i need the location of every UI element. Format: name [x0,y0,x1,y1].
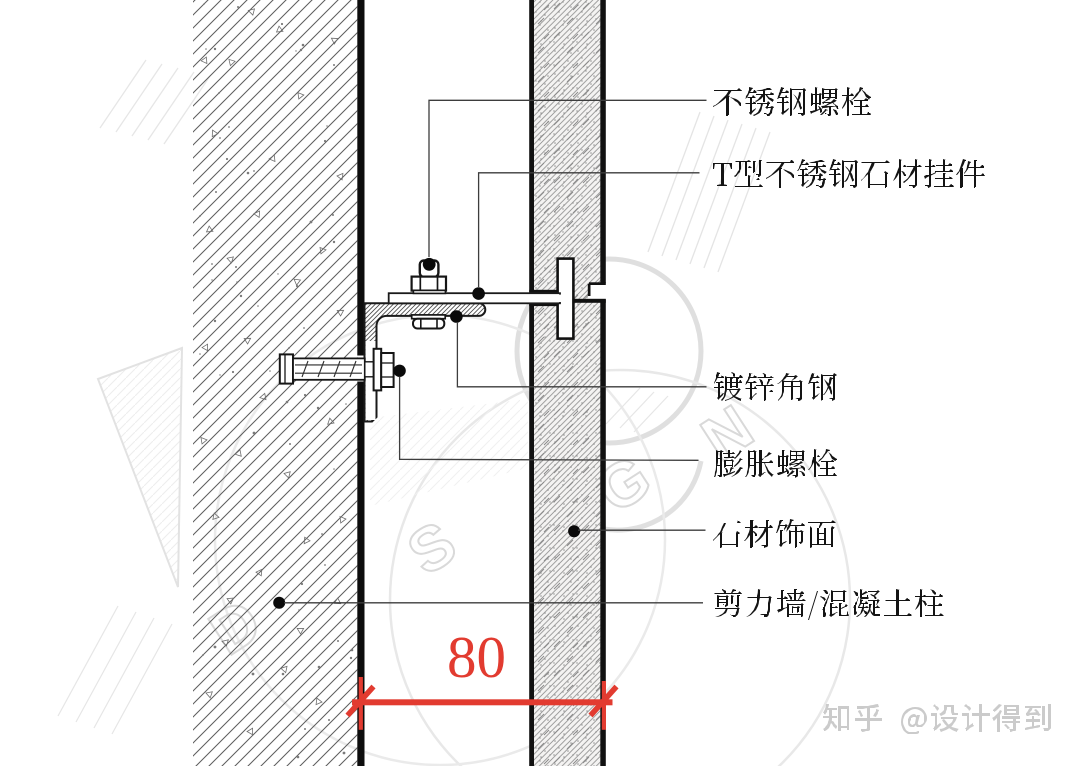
svg-text:80: 80 [447,624,506,690]
svg-text:S: S [396,508,468,588]
